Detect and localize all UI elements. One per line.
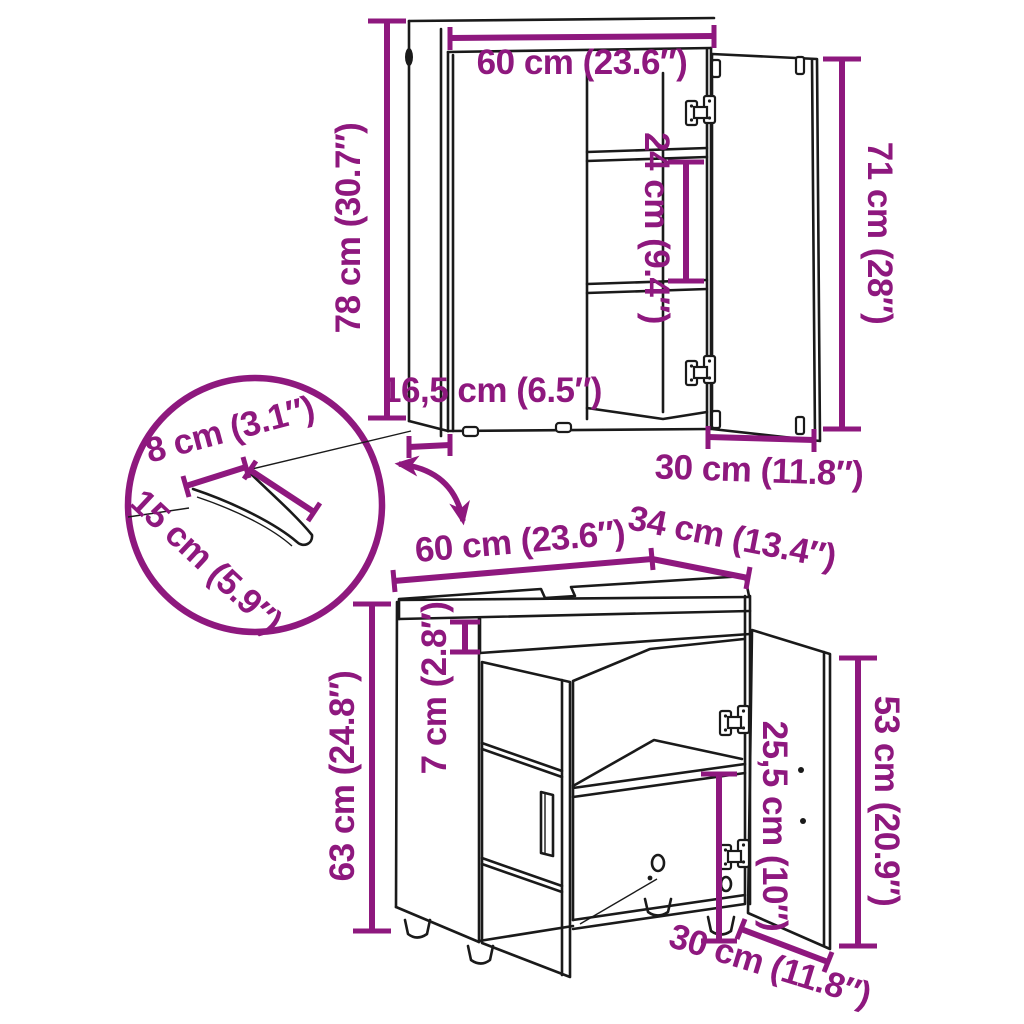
- apron-height-label: 7 cm (2.8″): [415, 602, 455, 775]
- mirror-door-height-label: 71 cm (28″): [859, 142, 899, 324]
- dim-line-mirror-depth: [409, 434, 450, 458]
- dim-line-cutout-depth: [244, 461, 320, 521]
- hinge-icon: [686, 356, 715, 385]
- mirror-door-width-label: 30 cm (11.8″): [654, 447, 864, 494]
- mirror-height-label: 78 cm (30.7″): [329, 123, 369, 334]
- mirror-width-label: 60 cm (23.6″): [477, 43, 688, 83]
- door-handle: [541, 792, 553, 856]
- sink-door-height-label: 53 cm (20.9″): [866, 696, 906, 907]
- hinge-icon: [720, 840, 749, 869]
- dim-line-sink-depth: [652, 559, 750, 589]
- shelf-spacing-label: 24 cm (9.4″): [636, 132, 676, 324]
- inner-height-label: 25,5 cm (10″): [754, 721, 794, 932]
- hinge-icon: [720, 706, 749, 735]
- sink-height-label: 63 cm (24.8″): [323, 671, 363, 882]
- wall-plug-mark: [405, 48, 413, 66]
- dim-line-mirror-height: [368, 21, 406, 418]
- detail-double-arrow-icon: [399, 464, 463, 521]
- dim-line-cutout-width: [183, 457, 249, 497]
- product-dimension-diagram: 60 cm (23.6″) 78 cm (30.7″) 24 cm (9.4″)…: [0, 0, 1024, 1024]
- dim-line-mirror-door-height: [823, 59, 861, 429]
- mirror-depth-label: 16,5 cm (6.5″): [382, 371, 602, 411]
- mirror-door-open: [712, 54, 820, 441]
- hinge-icon: [686, 96, 715, 125]
